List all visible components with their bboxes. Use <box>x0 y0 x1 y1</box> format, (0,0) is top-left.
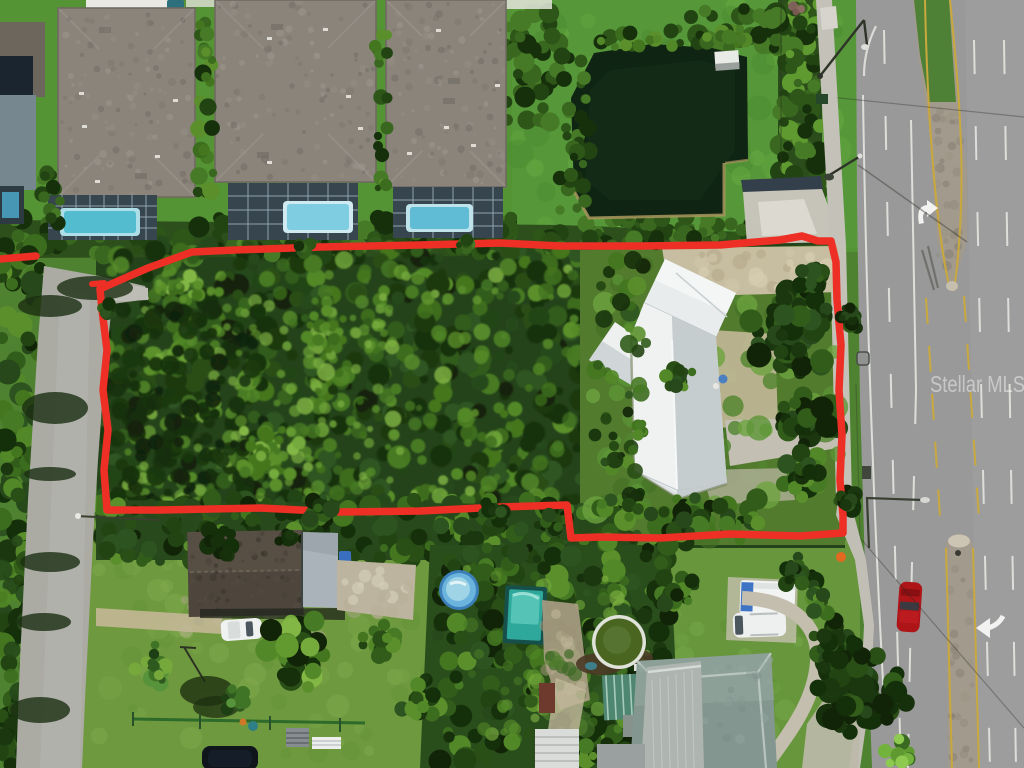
svg-text:Stellar MLS: Stellar MLS <box>930 372 1024 397</box>
